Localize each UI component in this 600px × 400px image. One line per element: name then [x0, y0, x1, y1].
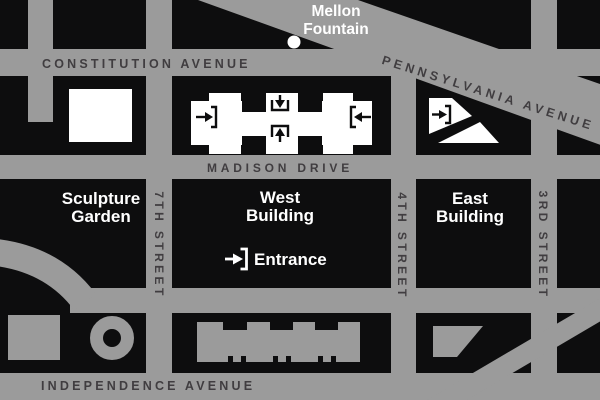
columned-building-notch — [270, 322, 293, 330]
sculpture-garden-label: Sculpture Garden — [62, 189, 140, 226]
columned-building-tick — [241, 356, 246, 362]
svg-text:Mellon: Mellon — [311, 3, 360, 20]
independence-avenue-label: INDEPENDENCE AVENUE — [41, 379, 255, 393]
svg-text:Building: Building — [436, 207, 504, 226]
svg-text:Fountain: Fountain — [303, 21, 368, 38]
mellon-fountain-dot — [288, 36, 301, 49]
columned-building-tick — [318, 356, 323, 362]
fourth-street-label: 4TH STREET — [395, 192, 409, 299]
madison-drive-label: MADISON DRIVE — [207, 161, 353, 175]
sculpture-garden-pavilion — [69, 89, 132, 142]
landmark-square-building — [8, 315, 60, 360]
nga-location-map: CONSTITUTION AVENUE PENNSYLVANIA AVENUE … — [0, 0, 600, 400]
columned-building-tick — [228, 356, 233, 362]
entrance-label: Entrance — [254, 250, 327, 269]
third-street-label: 3RD STREET — [536, 191, 550, 300]
columned-building-tick — [286, 356, 291, 362]
svg-text:West: West — [260, 188, 301, 207]
seventh-street-label: 7TH STREET — [152, 191, 166, 298]
columned-building-notch — [315, 322, 338, 330]
columned-building-tick — [331, 356, 336, 362]
constitution-avenue-label: CONSTITUTION AVENUE — [42, 57, 251, 71]
map-canvas: CONSTITUTION AVENUE PENNSYLVANIA AVENUE … — [0, 0, 600, 400]
mellon-fountain-label: Mellon Fountain — [303, 3, 368, 38]
svg-text:Building: Building — [246, 206, 314, 225]
svg-text:Garden: Garden — [71, 207, 131, 226]
svg-text:Sculpture: Sculpture — [62, 189, 140, 208]
columned-building-tick — [273, 356, 278, 362]
columned-building-notch — [223, 322, 247, 330]
svg-text:East: East — [452, 189, 488, 208]
